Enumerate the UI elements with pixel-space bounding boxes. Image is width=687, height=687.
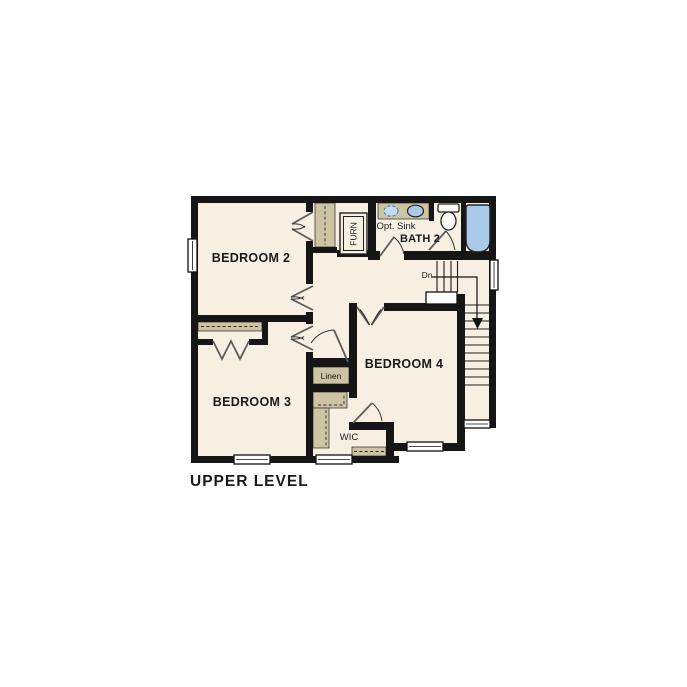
optional-sink-icon xyxy=(384,206,398,216)
label-optional-sink: Opt. Sink xyxy=(376,221,415,232)
floor-plan-drawing: BEDROOM 2 BEDROOM 3 BEDROOM 4 BATH 2 Opt… xyxy=(0,0,687,687)
wic-shelf-top xyxy=(313,392,347,408)
room-label-bedroom-2: BEDROOM 2 xyxy=(212,251,290,265)
floor-plan-page: BEDROOM 2 BEDROOM 3 BEDROOM 4 BATH 2 Opt… xyxy=(0,0,687,687)
window xyxy=(407,442,443,451)
window xyxy=(234,455,270,464)
window xyxy=(316,455,352,464)
window xyxy=(490,260,498,290)
room-label-bedroom-4: BEDROOM 4 xyxy=(365,357,443,371)
stair-landing xyxy=(426,292,457,304)
bathtub-icon xyxy=(466,205,490,252)
label-stairs-down: Dn xyxy=(422,270,433,280)
wic-shelf-left xyxy=(313,408,329,448)
plan-title: UPPER LEVEL xyxy=(190,473,309,490)
window xyxy=(464,420,490,428)
wic-shelf-bottom xyxy=(352,447,386,456)
label-furnace: FURN xyxy=(349,222,359,246)
label-linen: Linen xyxy=(321,371,342,381)
room-label-bath-2: BATH 2 xyxy=(400,233,440,245)
room-label-bedroom-3: BEDROOM 3 xyxy=(213,395,291,409)
label-wic: WIC xyxy=(340,432,359,443)
sink-icon xyxy=(408,205,424,217)
window xyxy=(188,239,197,272)
